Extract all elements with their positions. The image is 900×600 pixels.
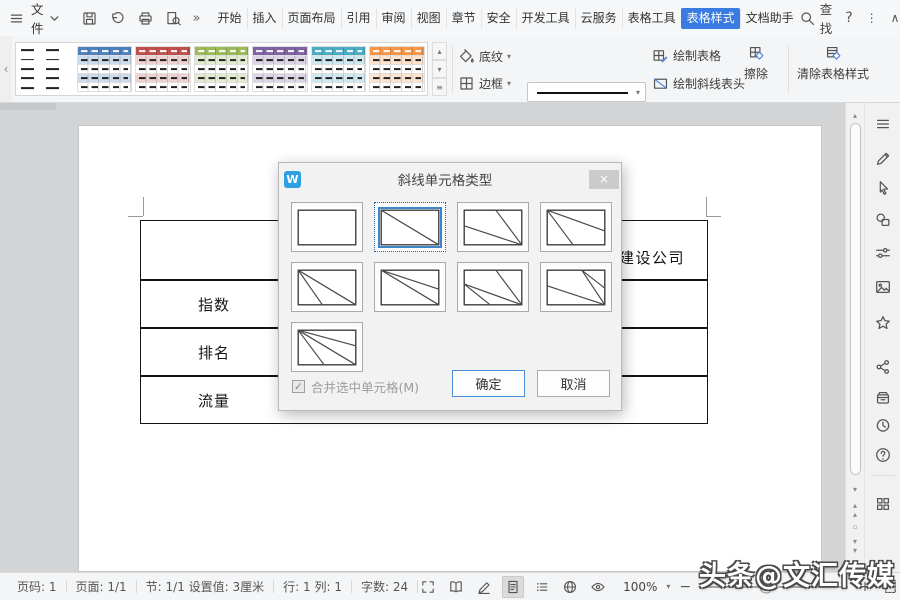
qat-more-icon[interactable]: »: [193, 11, 201, 26]
pane-collapse-handle[interactable]: ‹: [0, 36, 12, 102]
tab-9[interactable]: 开发工具: [516, 8, 575, 29]
border-label: 边框: [479, 75, 503, 92]
table-style-thumb-purple[interactable]: [252, 46, 308, 92]
cursor-icon[interactable]: [874, 179, 892, 197]
chevron-down-icon: [46, 10, 63, 27]
divider: [452, 45, 453, 93]
table-style-thumb-green[interactable]: [194, 46, 250, 92]
diagonal-option-5[interactable]: [291, 262, 363, 312]
outline-view-icon[interactable]: [532, 577, 552, 597]
diagonal-option-1[interactable]: [291, 202, 363, 252]
tab-10[interactable]: 云服务: [575, 8, 622, 29]
main-menu-icon[interactable]: [8, 10, 25, 27]
caret-down-icon: ▾: [507, 52, 511, 61]
save-icon[interactable]: [81, 10, 98, 27]
help-button[interactable]: ?: [845, 10, 852, 26]
write-mode-icon[interactable]: [474, 577, 494, 597]
tab-1[interactable]: 开始: [212, 8, 246, 29]
table-row-label-3[interactable]: 流量: [141, 390, 287, 411]
tab-8[interactable]: 安全: [481, 8, 516, 29]
clear-style-icon: [825, 45, 842, 62]
status-segment-4[interactable]: 行: 1 列: 1: [274, 578, 351, 595]
draw-diagonal-icon: [652, 75, 669, 92]
diagonal-option-9[interactable]: [291, 322, 363, 372]
titlebar-right: 查找 ? ⋮ ∧: [799, 0, 900, 37]
gallery-more-icon[interactable]: ≡: [432, 78, 447, 96]
gallery-up-icon[interactable]: ▴: [432, 42, 447, 60]
shading-button[interactable]: 底纹 ▾: [458, 48, 511, 65]
eraser-icon: [748, 45, 765, 62]
table-style-thumb-blue[interactable]: [77, 46, 133, 92]
caret-down-icon: ▾: [636, 88, 640, 97]
cancel-button[interactable]: 取消: [537, 370, 610, 397]
ruler-stub: [0, 103, 56, 110]
scrollbar-thumb[interactable]: [850, 123, 861, 475]
tab-3[interactable]: 页面布局: [282, 8, 341, 29]
view-switcher: [418, 576, 608, 598]
tab-2[interactable]: 插入: [247, 8, 282, 29]
previous-page-icon[interactable]: ▴▴: [846, 501, 864, 519]
table-row-label-2[interactable]: 排名: [141, 342, 287, 363]
zoom-caret-icon[interactable]: ▾: [666, 582, 670, 591]
ribbon-tabs: 开始插入页面布局引用审阅视图章节安全开发工具云服务表格工具表格样式文档助手: [212, 8, 798, 29]
draw-table-button[interactable]: 绘制表格: [652, 47, 721, 64]
vertical-scrollbar[interactable]: ▴ ▾ ▴▴ ▫ ▾▾: [846, 103, 865, 572]
scroll-up-icon[interactable]: ▴: [846, 111, 864, 120]
gallery-down-icon[interactable]: ▾: [432, 60, 447, 78]
gallery-scroll: ▴ ▾ ≡: [432, 42, 447, 96]
hamburger-icon[interactable]: [874, 115, 892, 133]
shapes-icon[interactable]: [874, 211, 892, 229]
caret-down-icon: ▾: [507, 79, 511, 88]
quick-access-toolbar: »: [81, 10, 201, 27]
tab-7[interactable]: 章节: [446, 8, 481, 29]
status-segment-5[interactable]: 字数: 24: [352, 578, 417, 595]
fullscreen-icon[interactable]: [418, 577, 438, 597]
history-icon[interactable]: [874, 416, 892, 434]
tab-13[interactable]: 文档助手: [740, 8, 799, 29]
table-style-thumb-orange[interactable]: [369, 46, 425, 92]
checkbox-icon[interactable]: ✓: [292, 380, 305, 393]
dialog-close-icon[interactable]: ×: [589, 170, 619, 189]
shading-bucket-icon: [458, 48, 475, 65]
share-icon[interactable]: [874, 358, 892, 376]
document-workspace: 建设公司 指数排名流量 W 斜线单元格类型 × ✓ 合并选中单元格(M) 确定 …: [0, 103, 900, 572]
line-style-combo[interactable]: ▾: [527, 82, 646, 102]
sidebar-tools: [865, 103, 900, 572]
diagonal-options-grid: [291, 202, 612, 372]
select-browse-object-icon[interactable]: ▫: [846, 523, 864, 531]
merge-cells-checkbox[interactable]: ✓ 合并选中单元格(M): [292, 377, 419, 396]
file-menu-button[interactable]: 文件: [31, 0, 44, 37]
tab-4[interactable]: 引用: [341, 8, 376, 29]
status-segments: 页码: 1页面: 1/1节: 1/1 设置值: 3厘米行: 1 列: 1字数: …: [8, 578, 418, 595]
clear-style-label: 清除表格样式: [797, 65, 869, 82]
merge-cells-label: 合并选中单元格(M): [311, 377, 419, 396]
draw-table-icon: [652, 47, 669, 64]
tab-12[interactable]: 表格样式: [681, 8, 740, 29]
search-icon: [799, 10, 816, 27]
image-icon[interactable]: [874, 278, 892, 296]
border-button[interactable]: 边框 ▾: [458, 75, 511, 92]
zoom-value[interactable]: 100%: [623, 580, 657, 594]
titlebar: 文件 » 开始插入页面布局引用审阅视图章节安全开发工具云服务表格工具表格样式文档…: [0, 0, 900, 36]
eye-protect-icon[interactable]: [588, 577, 608, 597]
tab-6[interactable]: 视图: [411, 8, 446, 29]
diagonal-option-2[interactable]: [374, 202, 446, 252]
border-grid-icon: [458, 75, 475, 92]
line-style-preview: [537, 92, 628, 94]
apps-grid-icon[interactable]: [874, 495, 892, 513]
diagonal-option-8[interactable]: [540, 262, 612, 312]
scroll-down-icon[interactable]: ▾: [846, 485, 864, 494]
draw-diagonal-button[interactable]: 绘制斜线表头: [652, 75, 745, 92]
star-icon[interactable]: [874, 314, 892, 332]
draw-diagonal-label: 绘制斜线表头: [673, 75, 745, 92]
right-sidebar: ▴ ▾ ▴▴ ▫ ▾▾: [845, 103, 900, 572]
erase-button[interactable]: 擦除: [744, 45, 768, 82]
diagonal-option-7[interactable]: [457, 262, 529, 312]
status-segment-2[interactable]: 页面: 1/1: [67, 578, 136, 595]
diagonal-cell-dialog: W 斜线单元格类型 × ✓ 合并选中单元格(M) 确定 取消: [278, 162, 622, 411]
table-style-thumb-plain[interactable]: [18, 46, 74, 92]
tab-11[interactable]: 表格工具: [622, 8, 681, 29]
diagonal-option-6[interactable]: [374, 262, 446, 312]
zoom-out-icon[interactable]: −: [679, 579, 691, 595]
dialog-titlebar[interactable]: W 斜线单元格类型 ×: [279, 163, 621, 191]
table-style-gallery: [15, 42, 428, 96]
table-style-thumb-red[interactable]: [135, 46, 191, 92]
print-preview-icon[interactable]: [165, 10, 182, 27]
adjust-icon[interactable]: [874, 244, 892, 262]
diagonal-option-4[interactable]: [540, 202, 612, 252]
table-row-label-1[interactable]: 指数: [141, 294, 287, 315]
divider: [871, 475, 895, 476]
clear-table-style-button[interactable]: 清除表格样式: [797, 45, 869, 82]
draw-table-label: 绘制表格: [673, 47, 721, 64]
watermark: 头条@文汇传媒: [699, 554, 895, 593]
archive-icon[interactable]: [874, 389, 892, 407]
wps-logo-icon: W: [284, 171, 301, 188]
help-icon[interactable]: [874, 446, 892, 464]
undo-icon[interactable]: [109, 10, 126, 27]
shading-label: 底纹: [479, 48, 503, 65]
page-view-icon[interactable]: [502, 576, 524, 598]
find-button[interactable]: 查找: [799, 0, 833, 37]
read-mode-icon[interactable]: [446, 577, 466, 597]
ok-button[interactable]: 确定: [452, 370, 525, 397]
divider: [788, 45, 789, 93]
erase-label: 擦除: [744, 65, 768, 82]
kebab-menu-icon[interactable]: ⋮: [866, 11, 878, 25]
status-segment-1[interactable]: 页码: 1: [8, 578, 66, 595]
collapse-ribbon-icon[interactable]: ∧: [891, 11, 900, 25]
table-style-thumb-teal[interactable]: [311, 46, 367, 92]
print-icon[interactable]: [137, 10, 154, 27]
ribbon: ‹ ▴ ▾ ≡ 底纹 ▾ 边框 ▾ ▾ 0.5 磅 ▾ ▾ 绘制表格 绘制斜线表…: [0, 36, 900, 103]
next-page-icon[interactable]: ▾▾: [846, 537, 864, 555]
find-label: 查找: [820, 0, 833, 37]
web-view-icon[interactable]: [560, 577, 580, 597]
status-segment-3[interactable]: 节: 1/1 设置值: 3厘米: [137, 578, 273, 595]
table-cell-company[interactable]: 建设公司: [619, 247, 685, 268]
edit-pen-icon[interactable]: [874, 149, 892, 167]
tab-5[interactable]: 审阅: [376, 8, 411, 29]
diagonal-option-3[interactable]: [457, 202, 529, 252]
dialog-title: 斜线单元格类型: [301, 169, 589, 189]
